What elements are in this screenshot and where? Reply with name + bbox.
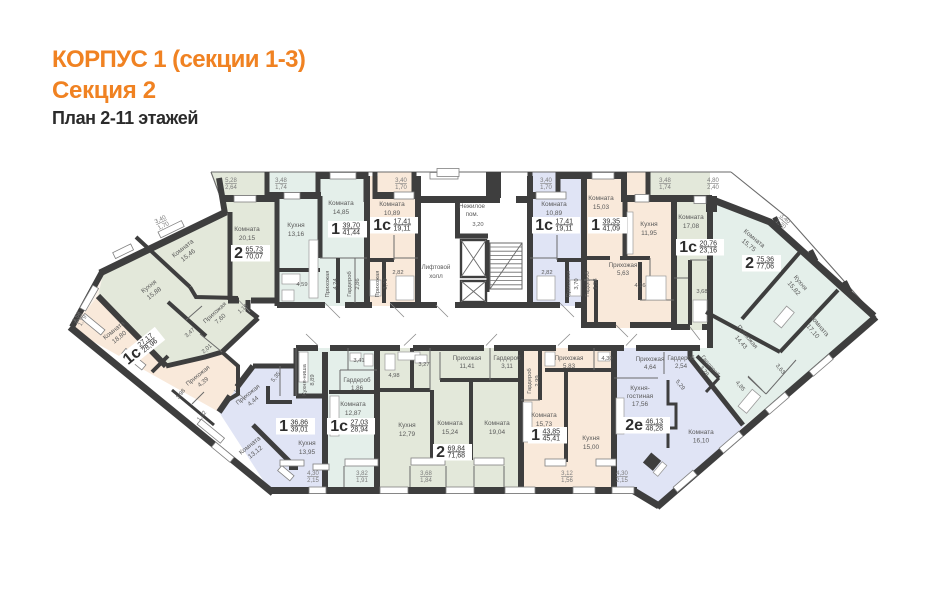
svg-text:19,04: 19,04 — [489, 429, 506, 436]
svg-text:1,70: 1,70 — [395, 185, 407, 191]
svg-text:Гардероб: Гардероб — [343, 377, 371, 384]
svg-text:Кухня-: Кухня- — [630, 385, 650, 392]
svg-text:1с: 1с — [535, 217, 553, 234]
svg-text:2,82: 2,82 — [541, 270, 552, 276]
svg-text:Прихожая: Прихожая — [555, 355, 584, 362]
svg-text:12,79: 12,79 — [399, 431, 416, 438]
svg-text:Комната: Комната — [379, 201, 405, 208]
svg-text:27,03: 27,03 — [351, 420, 369, 427]
svg-text:Кухня: Кухня — [298, 440, 316, 447]
svg-text:4,16: 4,16 — [634, 283, 645, 289]
svg-text:4,24: 4,24 — [333, 278, 339, 290]
svg-text:1с: 1с — [373, 217, 391, 234]
svg-text:15,24: 15,24 — [442, 429, 459, 436]
svg-text:5,83: 5,83 — [563, 363, 576, 370]
svg-text:Комната: Комната — [328, 200, 354, 207]
svg-text:1,86: 1,86 — [351, 385, 364, 392]
svg-text:17,56: 17,56 — [632, 401, 649, 408]
svg-text:4,30: 4,30 — [307, 471, 319, 477]
svg-text:15,03: 15,03 — [593, 204, 610, 211]
svg-text:Прихожая: Прихожая — [566, 271, 572, 298]
svg-text:3,20: 3,20 — [472, 222, 483, 228]
svg-text:Кухня: Кухня — [287, 222, 305, 229]
svg-text:Прихожая: Прихожая — [375, 271, 381, 298]
svg-text:4,64: 4,64 — [644, 364, 657, 371]
svg-text:4,59: 4,59 — [296, 282, 307, 288]
svg-text:11,95: 11,95 — [641, 230, 657, 237]
svg-text:23,16: 23,16 — [700, 248, 718, 255]
svg-text:39,70: 39,70 — [343, 223, 361, 230]
svg-text:48,28: 48,28 — [646, 426, 664, 433]
svg-text:1,84: 1,84 — [420, 478, 432, 484]
svg-text:19,11: 19,11 — [556, 226, 573, 233]
svg-text:Прихожая: Прихожая — [609, 262, 638, 269]
svg-text:Комната: Комната — [437, 420, 463, 427]
svg-text:19,11: 19,11 — [394, 226, 411, 233]
svg-text:3,27: 3,27 — [418, 362, 429, 368]
svg-text:39,01: 39,01 — [291, 427, 309, 434]
svg-text:75,36: 75,36 — [757, 257, 775, 264]
svg-text:Комната: Комната — [678, 214, 704, 221]
svg-text:Гардероб: Гардероб — [667, 355, 695, 362]
svg-text:46,13: 46,13 — [646, 419, 664, 426]
svg-text:Комната: Комната — [234, 226, 260, 233]
svg-text:1,74: 1,74 — [275, 185, 287, 191]
svg-text:3,41: 3,41 — [353, 358, 364, 364]
svg-text:Прихожая: Прихожая — [636, 356, 665, 363]
svg-text:16,10: 16,10 — [693, 438, 710, 445]
svg-text:Комната: Комната — [484, 420, 510, 427]
svg-text:3,82: 3,82 — [356, 471, 368, 477]
svg-text:холл: холл — [429, 273, 443, 280]
svg-text:5,28: 5,28 — [225, 178, 237, 184]
svg-text:4,98: 4,98 — [388, 373, 399, 379]
svg-text:5,63: 5,63 — [617, 270, 630, 277]
svg-text:3,70: 3,70 — [574, 278, 580, 289]
svg-text:2,58: 2,58 — [593, 278, 599, 289]
svg-text:14,85: 14,85 — [333, 209, 350, 216]
svg-text:Гардероб: Гардероб — [347, 271, 353, 297]
svg-text:1с: 1с — [330, 418, 348, 435]
svg-text:Комната: Комната — [340, 401, 366, 408]
svg-text:45,41: 45,41 — [543, 436, 561, 443]
svg-text:Гардероб: Гардероб — [527, 368, 533, 394]
svg-text:15,00: 15,00 — [583, 444, 600, 451]
svg-text:Нежилое: Нежилое — [459, 203, 486, 210]
svg-text:3,68: 3,68 — [696, 289, 707, 295]
svg-text:17,41: 17,41 — [556, 219, 574, 226]
svg-text:3,40: 3,40 — [540, 178, 552, 184]
svg-text:Комната: Комната — [541, 201, 567, 208]
svg-text:28,94: 28,94 — [351, 427, 369, 434]
svg-text:Кухня: Кухня — [640, 221, 658, 228]
svg-text:3,40: 3,40 — [395, 178, 407, 184]
svg-text:Комната: Комната — [688, 429, 714, 436]
svg-text:2,40: 2,40 — [707, 185, 719, 191]
svg-text:пом.: пом. — [466, 211, 479, 218]
svg-text:Кухня: Кухня — [398, 422, 416, 429]
svg-text:10,89: 10,89 — [384, 210, 401, 217]
svg-text:1,91: 1,91 — [356, 478, 368, 484]
svg-text:10,89: 10,89 — [546, 210, 563, 217]
svg-text:4,30: 4,30 — [616, 471, 628, 477]
svg-text:1: 1 — [531, 427, 540, 444]
svg-text:2е: 2е — [625, 417, 643, 434]
svg-text:Гардероб: Гардероб — [585, 271, 591, 297]
svg-text:2,64: 2,64 — [225, 185, 237, 191]
svg-text:2,86: 2,86 — [355, 278, 361, 289]
svg-text:3,48: 3,48 — [275, 178, 287, 184]
svg-text:2,82: 2,82 — [392, 270, 403, 276]
svg-text:11,41: 11,41 — [459, 363, 475, 370]
svg-text:77,06: 77,06 — [757, 264, 775, 271]
svg-text:69,84: 69,84 — [448, 446, 466, 453]
svg-text:39,35: 39,35 — [603, 219, 621, 226]
svg-text:2,54: 2,54 — [675, 363, 688, 370]
svg-text:Кухня: Кухня — [582, 435, 600, 442]
svg-text:8,89: 8,89 — [310, 374, 316, 385]
svg-text:13,16: 13,16 — [288, 231, 305, 238]
svg-text:1: 1 — [279, 418, 288, 435]
svg-text:2,15: 2,15 — [307, 478, 319, 484]
svg-text:Гардероб: Гардероб — [493, 355, 521, 362]
svg-text:43,85: 43,85 — [543, 429, 561, 436]
svg-text:2: 2 — [436, 444, 445, 461]
svg-text:41,44: 41,44 — [343, 230, 361, 237]
svg-text:71,68: 71,68 — [448, 453, 466, 460]
svg-text:41,09: 41,09 — [603, 226, 621, 233]
svg-text:1,70: 1,70 — [540, 185, 552, 191]
svg-text:65,73: 65,73 — [246, 247, 264, 254]
svg-text:4,80: 4,80 — [707, 178, 719, 184]
svg-text:13,95: 13,95 — [299, 449, 316, 456]
svg-text:36,86: 36,86 — [291, 420, 309, 427]
svg-text:4,30: 4,30 — [601, 356, 612, 362]
svg-text:70,07: 70,07 — [246, 254, 264, 261]
svg-text:3,48: 3,48 — [659, 178, 671, 184]
svg-text:1,56: 1,56 — [561, 478, 573, 484]
svg-text:Лифтовой: Лифтовой — [422, 264, 451, 271]
svg-text:1с: 1с — [679, 239, 697, 256]
svg-text:1: 1 — [591, 217, 600, 234]
svg-text:Кухня-ниша: Кухня-ниша — [302, 363, 308, 396]
svg-text:2,15: 2,15 — [616, 478, 628, 484]
svg-text:3,11: 3,11 — [501, 363, 513, 370]
svg-text:3,12: 3,12 — [561, 471, 573, 477]
svg-text:гостиная: гостиная — [627, 393, 654, 400]
svg-text:17,41: 17,41 — [394, 219, 412, 226]
svg-text:2: 2 — [745, 255, 754, 272]
svg-text:20,15: 20,15 — [239, 235, 256, 242]
svg-text:3,70: 3,70 — [383, 278, 389, 289]
svg-text:Прихожая: Прихожая — [453, 355, 482, 362]
svg-text:2: 2 — [234, 245, 243, 262]
svg-text:3,68: 3,68 — [420, 471, 432, 477]
svg-text:12,87: 12,87 — [345, 410, 362, 417]
svg-text:Прихожая: Прихожая — [325, 271, 331, 298]
svg-text:1,74: 1,74 — [659, 185, 671, 191]
svg-text:2,99: 2,99 — [535, 375, 541, 386]
svg-text:17,08: 17,08 — [683, 223, 700, 230]
svg-text:Комната: Комната — [531, 412, 557, 419]
svg-text:20,76: 20,76 — [700, 241, 718, 248]
svg-text:1: 1 — [331, 221, 340, 238]
svg-text:Комната: Комната — [588, 195, 614, 202]
